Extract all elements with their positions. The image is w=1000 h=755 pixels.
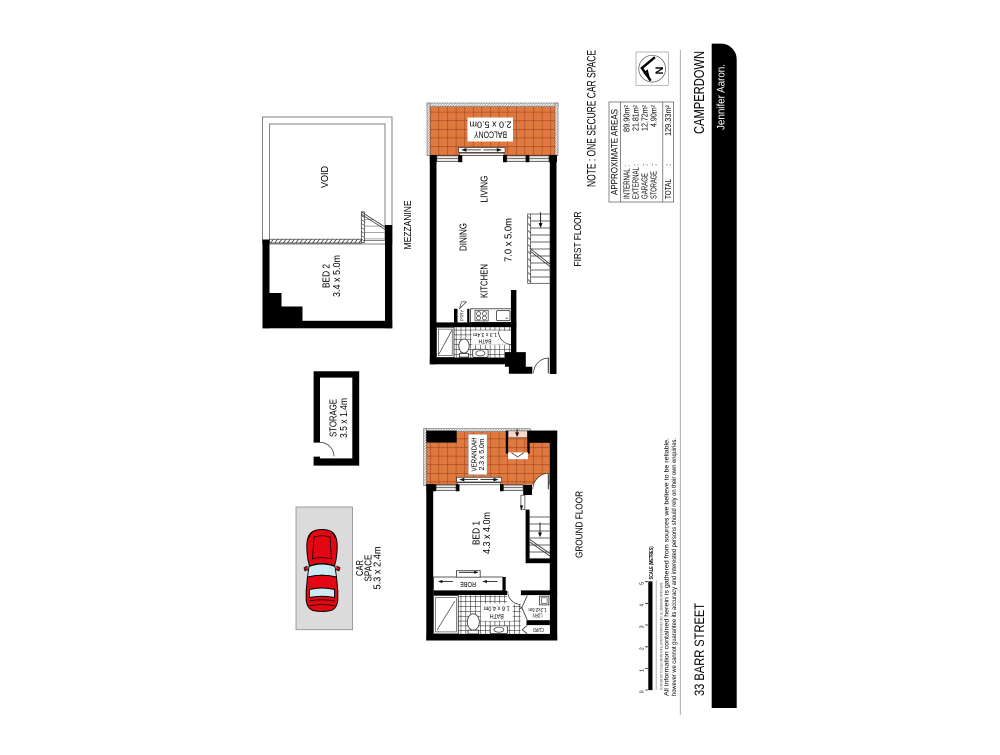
svg-text:BATH: BATH xyxy=(490,612,504,619)
svg-text:7.0 x 5.0m: 7.0 x 5.0m xyxy=(504,218,515,262)
svg-text:All information contained here: All information contained herein is gath… xyxy=(664,438,671,696)
svg-text:ROBE: ROBE xyxy=(460,580,476,589)
svg-text:however we cannot guarantee it: however we cannot guarantee its accuracy… xyxy=(671,438,678,696)
svg-text::: : xyxy=(664,164,673,166)
svg-text:DINING: DINING xyxy=(459,223,470,251)
svg-text:89.90m²: 89.90m² xyxy=(622,105,631,132)
svg-text:3.4 x 5.0m: 3.4 x 5.0m xyxy=(332,255,343,297)
svg-text:INTERNAL :: INTERNAL : xyxy=(622,165,631,199)
svg-text:BALCONY: BALCONY xyxy=(474,130,507,140)
svg-text:2.0 x 5.0m: 2.0 x 5.0m xyxy=(469,120,511,130)
svg-text:VOID: VOID xyxy=(320,166,331,188)
svg-text:2.3 x 5.0m: 2.3 x 5.0m xyxy=(479,438,486,470)
svg-text:KITCHEN: KITCHEN xyxy=(480,264,491,298)
svg-text:LIVING: LIVING xyxy=(480,176,491,203)
svg-text:1.2x2.6m: 1.2x2.6m xyxy=(529,606,547,612)
svg-text:2: 2 xyxy=(640,647,646,650)
svg-text:CAMPERDOWN: CAMPERDOWN xyxy=(691,51,708,134)
svg-text:129.33m²: 129.33m² xyxy=(664,105,673,136)
svg-text:5.3 x 2.4m: 5.3 x 2.4m xyxy=(373,547,384,590)
svg-text:LDRY: LDRY xyxy=(532,612,542,618)
svg-text:N: N xyxy=(654,66,666,74)
svg-text:4: 4 xyxy=(640,604,646,607)
svg-text:FIRST FLOOR: FIRST FLOOR xyxy=(572,211,584,266)
svg-text:NOTE : ONE SECURE CAR SPACE: NOTE : ONE SECURE CAR SPACE xyxy=(585,50,599,187)
svg-text:BED 2: BED 2 xyxy=(322,264,333,288)
svg-text:3.5 x 1.4m: 3.5 x 1.4m xyxy=(339,398,350,438)
svg-text:12.72m²: 12.72m² xyxy=(640,105,649,131)
svg-text:GARAGE: GARAGE xyxy=(640,173,649,199)
svg-text:CUPD: CUPD xyxy=(533,626,544,632)
svg-text:33 BARR STREET: 33 BARR STREET xyxy=(692,603,707,696)
svg-text:STORAGE: STORAGE xyxy=(649,171,658,199)
svg-text:21.81m²: 21.81m² xyxy=(631,105,640,131)
svg-text:1.3 x 3.4m: 1.3 x 3.4m xyxy=(473,331,497,337)
svg-text:1: 1 xyxy=(640,669,646,672)
svg-text:4.3 x 4.0m: 4.3 x 4.0m xyxy=(482,512,493,554)
svg-text::: : xyxy=(640,164,649,166)
svg-text:5: 5 xyxy=(640,582,646,585)
svg-text:SCALE (METRES): SCALE (METRES) xyxy=(649,546,655,579)
svg-text:TOTAL: TOTAL xyxy=(664,179,673,199)
svg-text:EXTERNAL :: EXTERNAL : xyxy=(631,164,640,199)
svg-text:GROUND FLOOR: GROUND FLOOR xyxy=(574,491,586,558)
svg-text:3: 3 xyxy=(640,625,646,628)
svg-text:APPROXIMATE AREAS: APPROXIMATE AREAS xyxy=(610,109,620,195)
svg-text:4.90m²: 4.90m² xyxy=(649,105,658,127)
svg-text:PTRY: PTRY xyxy=(460,310,465,321)
svg-text:1.6 x 4.0m: 1.6 x 4.0m xyxy=(484,605,510,612)
svg-text:STORAGE: STORAGE xyxy=(329,399,340,437)
svg-text:BATH: BATH xyxy=(479,337,492,343)
svg-text:0: 0 xyxy=(640,690,646,693)
svg-text:VERANDAH: VERANDAH xyxy=(472,438,479,472)
svg-text:Jennifer Aaron.: Jennifer Aaron. xyxy=(716,64,728,130)
svg-text:BED 1: BED 1 xyxy=(472,521,483,545)
svg-text::: : xyxy=(649,164,658,166)
svg-text:MEZZANINE: MEZZANINE xyxy=(402,201,414,250)
